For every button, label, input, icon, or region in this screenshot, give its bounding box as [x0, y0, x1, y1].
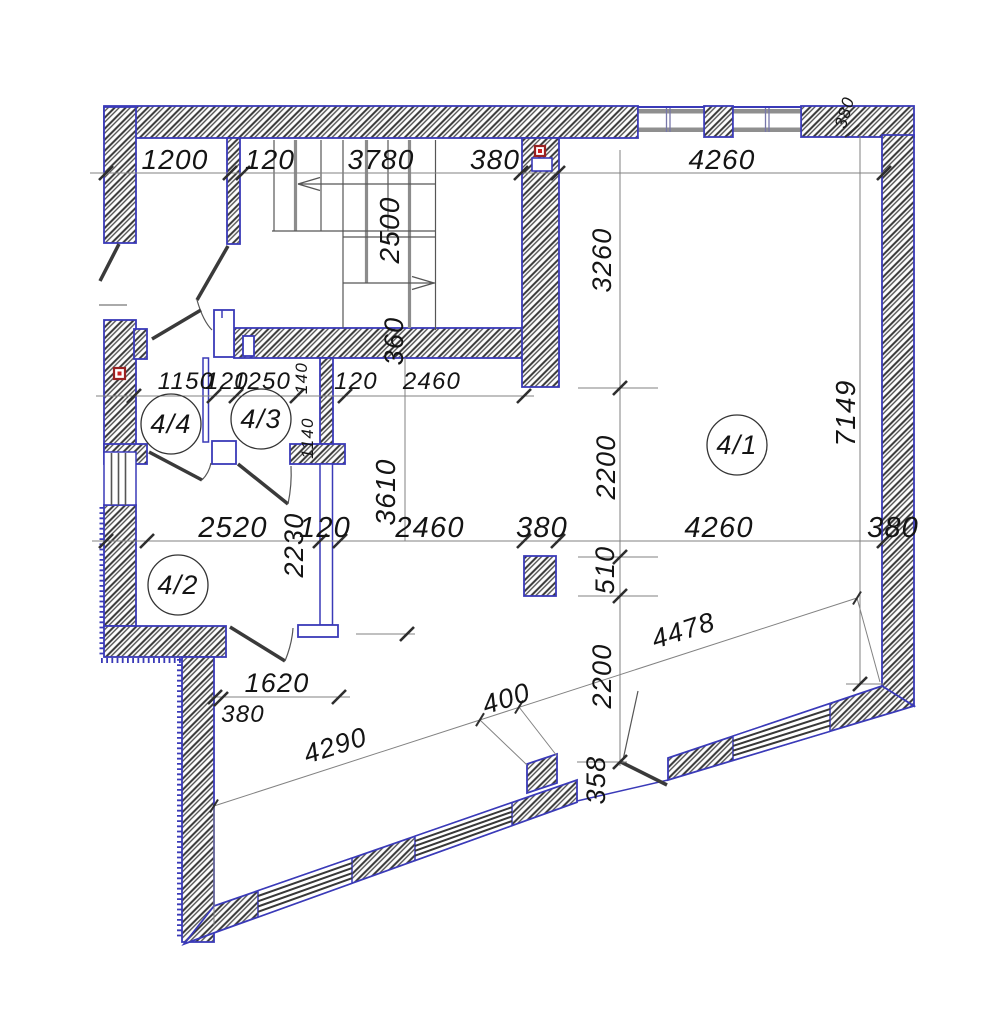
svg-text:1620: 1620 [245, 668, 310, 698]
svg-text:2520: 2520 [197, 512, 267, 544]
svg-text:4260: 4260 [684, 512, 753, 544]
svg-text:4/2: 4/2 [157, 570, 198, 600]
svg-text:2460: 2460 [402, 368, 461, 395]
svg-text:358: 358 [581, 756, 611, 805]
svg-text:1250: 1250 [233, 368, 291, 395]
svg-text:380: 380 [221, 701, 265, 728]
svg-text:2460: 2460 [394, 512, 464, 544]
svg-text:2230: 2230 [279, 513, 309, 579]
svg-text:3610: 3610 [370, 458, 401, 525]
svg-text:120: 120 [334, 368, 378, 395]
svg-text:380: 380 [867, 512, 919, 544]
svg-text:4/1: 4/1 [716, 430, 757, 460]
svg-text:3260: 3260 [587, 228, 617, 293]
svg-text:4260: 4260 [688, 144, 755, 175]
svg-text:510: 510 [590, 546, 620, 595]
svg-text:2200: 2200 [587, 644, 617, 710]
svg-text:2200: 2200 [591, 435, 621, 501]
svg-text:380: 380 [470, 144, 520, 175]
svg-text:3780: 3780 [347, 144, 414, 175]
svg-text:4/3: 4/3 [240, 404, 281, 434]
svg-text:1200: 1200 [141, 144, 208, 175]
svg-text:4/4: 4/4 [150, 409, 191, 439]
svg-text:7149: 7149 [830, 379, 861, 446]
svg-text:2500: 2500 [374, 196, 405, 264]
svg-text:140: 140 [292, 362, 311, 394]
svg-text:360: 360 [379, 317, 409, 366]
svg-text:380: 380 [516, 512, 568, 544]
svg-text:120: 120 [245, 144, 295, 175]
svg-text:1140: 1140 [298, 417, 317, 458]
